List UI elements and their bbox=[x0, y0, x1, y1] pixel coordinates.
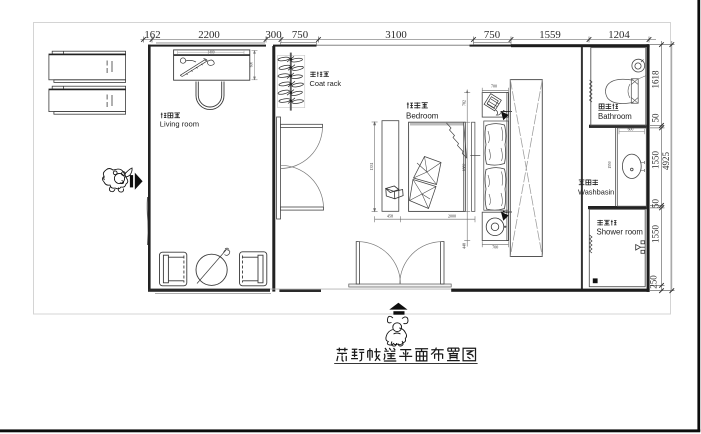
svg-text:50: 50 bbox=[651, 199, 661, 209]
svg-text:750: 750 bbox=[292, 29, 308, 41]
svg-text:1550: 1550 bbox=[608, 161, 612, 168]
svg-text:700: 700 bbox=[492, 245, 498, 250]
svg-text:750: 750 bbox=[484, 29, 500, 41]
svg-text:1882: 1882 bbox=[462, 164, 467, 172]
svg-text:448: 448 bbox=[462, 243, 467, 249]
svg-text:2200: 2200 bbox=[198, 29, 220, 41]
svg-text:Living room: Living room bbox=[160, 120, 199, 129]
svg-text:2000: 2000 bbox=[448, 214, 456, 219]
svg-text:600: 600 bbox=[250, 62, 254, 68]
svg-text:458: 458 bbox=[387, 214, 393, 219]
svg-text:Coat rack: Coat rack bbox=[310, 79, 342, 88]
svg-text:162: 162 bbox=[144, 29, 160, 41]
svg-text:1550: 1550 bbox=[651, 225, 661, 244]
svg-text:1204: 1204 bbox=[608, 29, 630, 41]
svg-text:250: 250 bbox=[649, 275, 659, 289]
svg-text:700: 700 bbox=[491, 84, 497, 89]
svg-text:50: 50 bbox=[651, 113, 661, 123]
svg-text:1550: 1550 bbox=[651, 151, 661, 170]
svg-text:1618: 1618 bbox=[651, 70, 661, 89]
svg-text:4925: 4925 bbox=[661, 152, 671, 171]
svg-text:300: 300 bbox=[265, 29, 281, 41]
svg-text:1559: 1559 bbox=[539, 29, 561, 41]
svg-text:782: 782 bbox=[462, 100, 467, 106]
svg-text:1331: 1331 bbox=[369, 163, 374, 171]
svg-text:Shower room: Shower room bbox=[597, 227, 643, 236]
svg-text:Bedroom: Bedroom bbox=[406, 112, 439, 121]
svg-text:3100: 3100 bbox=[385, 29, 407, 41]
svg-text:Washbasin: Washbasin bbox=[578, 187, 614, 196]
svg-text:Bathroom: Bathroom bbox=[598, 112, 632, 121]
